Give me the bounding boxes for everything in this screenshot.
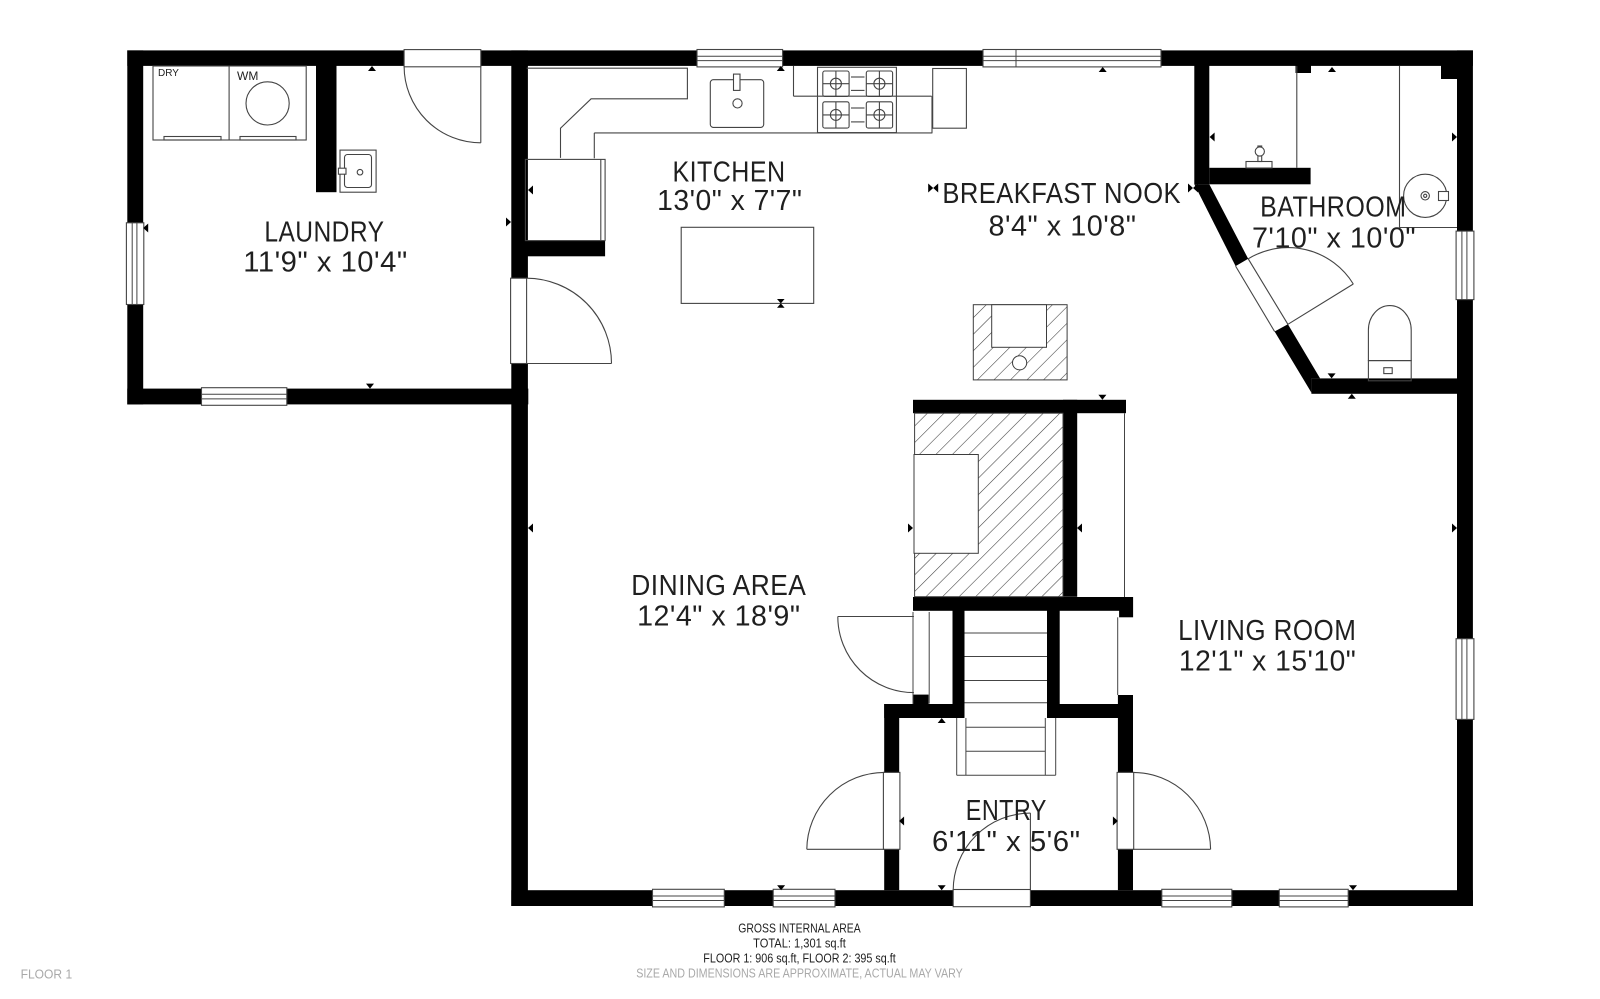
svg-text:11'9" x 10'4": 11'9" x 10'4" xyxy=(243,246,407,278)
svg-text:DRY: DRY xyxy=(158,68,179,79)
svg-text:LAUNDRY: LAUNDRY xyxy=(264,217,384,249)
svg-text:WM: WM xyxy=(237,69,258,83)
svg-text:GROSS INTERNAL AREA: GROSS INTERNAL AREA xyxy=(738,921,861,935)
svg-text:13'0" x 7'7": 13'0" x 7'7" xyxy=(657,185,802,217)
svg-text:LIVING ROOM: LIVING ROOM xyxy=(1178,615,1356,647)
svg-text:6'11" x 5'6": 6'11" x 5'6" xyxy=(932,826,1081,858)
svg-text:BREAKFAST NOOK: BREAKFAST NOOK xyxy=(942,178,1181,210)
svg-text:12'1" x 15'10": 12'1" x 15'10" xyxy=(1179,645,1356,677)
svg-text:12'4" x 18'9": 12'4" x 18'9" xyxy=(637,601,800,633)
svg-text:8'4" x 10'8": 8'4" x 10'8" xyxy=(989,210,1137,242)
svg-text:FLOOR 1: FLOOR 1 xyxy=(21,967,73,981)
svg-text:BATHROOM: BATHROOM xyxy=(1260,192,1406,224)
svg-text:7'10" x 10'0": 7'10" x 10'0" xyxy=(1252,222,1416,254)
svg-text:TOTAL: 1,301 sq.ft: TOTAL: 1,301 sq.ft xyxy=(753,936,846,950)
svg-text:FLOOR 1: 906 sq.ft, FLOOR 2: 3: FLOOR 1: 906 sq.ft, FLOOR 2: 395 sq.ft xyxy=(703,952,896,966)
svg-text:DINING AREA: DINING AREA xyxy=(631,570,806,602)
svg-text:SIZE AND DIMENSIONS ARE APPROX: SIZE AND DIMENSIONS ARE APPROXIMATE, ACT… xyxy=(636,967,963,981)
svg-text:ENTRY: ENTRY xyxy=(966,795,1047,827)
svg-text:KITCHEN: KITCHEN xyxy=(673,156,786,188)
